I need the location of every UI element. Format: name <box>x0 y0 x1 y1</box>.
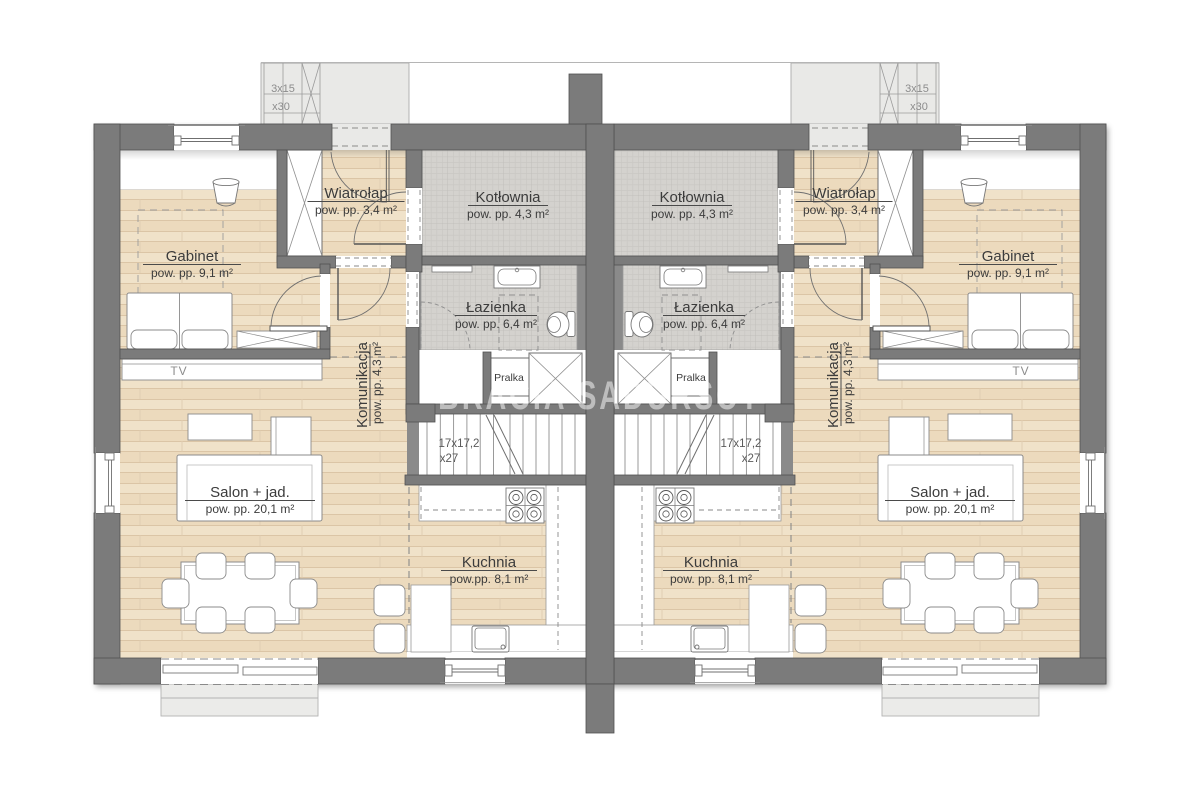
svg-text:pow. pp. 4,3 m²: pow. pp. 4,3 m² <box>841 342 855 424</box>
svg-text:x27: x27 <box>440 453 459 465</box>
svg-text:pow. pp. 3,4 m²: pow. pp. 3,4 m² <box>315 203 397 217</box>
svg-text:Salon + jad.: Salon + jad. <box>910 484 990 501</box>
svg-text:Wiatrołap: Wiatrołap <box>812 185 875 202</box>
svg-text:3x15: 3x15 <box>271 83 295 95</box>
svg-text:Komunikacja: Komunikacja <box>354 341 371 428</box>
svg-text:pow. pp. 6,4 m²: pow. pp. 6,4 m² <box>455 317 537 331</box>
svg-text:pow. pp. 9,1 m²: pow. pp. 9,1 m² <box>151 266 233 280</box>
svg-text:Gabinet: Gabinet <box>166 248 219 265</box>
svg-text:Wiatrołap: Wiatrołap <box>324 185 387 202</box>
svg-text:Komunikacja: Komunikacja <box>825 341 842 428</box>
svg-text:x27: x27 <box>742 453 761 465</box>
svg-text:17x17,2: 17x17,2 <box>721 438 762 450</box>
svg-text:pow.pp. 8,1 m²: pow.pp. 8,1 m² <box>450 572 529 586</box>
svg-text:pow. pp. 4,3 m²: pow. pp. 4,3 m² <box>370 342 384 424</box>
svg-text:pow. pp. 6,4 m²: pow. pp. 6,4 m² <box>663 317 745 331</box>
svg-text:pow. pp. 20,1 m²: pow. pp. 20,1 m² <box>906 502 995 516</box>
svg-text:BRACIA SADURSCY: BRACIA SADURSCY <box>438 373 762 418</box>
svg-text:Kotłownia: Kotłownia <box>659 189 725 206</box>
svg-text:Kotłownia: Kotłownia <box>475 189 541 206</box>
svg-text:pow. pp. 8,1 m²: pow. pp. 8,1 m² <box>670 572 752 586</box>
svg-text:pow. pp. 4,3 m²: pow. pp. 4,3 m² <box>467 207 549 221</box>
svg-text:Kuchnia: Kuchnia <box>462 554 517 571</box>
svg-text:pow. pp. 3,4 m²: pow. pp. 3,4 m² <box>803 203 885 217</box>
svg-text:x30: x30 <box>910 101 928 113</box>
svg-text:Łazienka: Łazienka <box>674 299 735 316</box>
svg-text:pow. pp. 4,3 m²: pow. pp. 4,3 m² <box>651 207 733 221</box>
svg-text:pow. pp. 20,1 m²: pow. pp. 20,1 m² <box>206 502 295 516</box>
svg-text:3x15: 3x15 <box>905 83 929 95</box>
svg-text:x30: x30 <box>272 101 290 113</box>
svg-text:Łazienka: Łazienka <box>466 299 527 316</box>
svg-text:17x17,2: 17x17,2 <box>439 438 480 450</box>
svg-text:TV: TV <box>170 364 187 378</box>
svg-text:pow. pp. 9,1 m²: pow. pp. 9,1 m² <box>967 266 1049 280</box>
svg-text:Salon + jad.: Salon + jad. <box>210 484 290 501</box>
svg-text:Kuchnia: Kuchnia <box>684 554 739 571</box>
svg-text:TV: TV <box>1012 364 1029 378</box>
svg-text:Gabinet: Gabinet <box>982 248 1035 265</box>
